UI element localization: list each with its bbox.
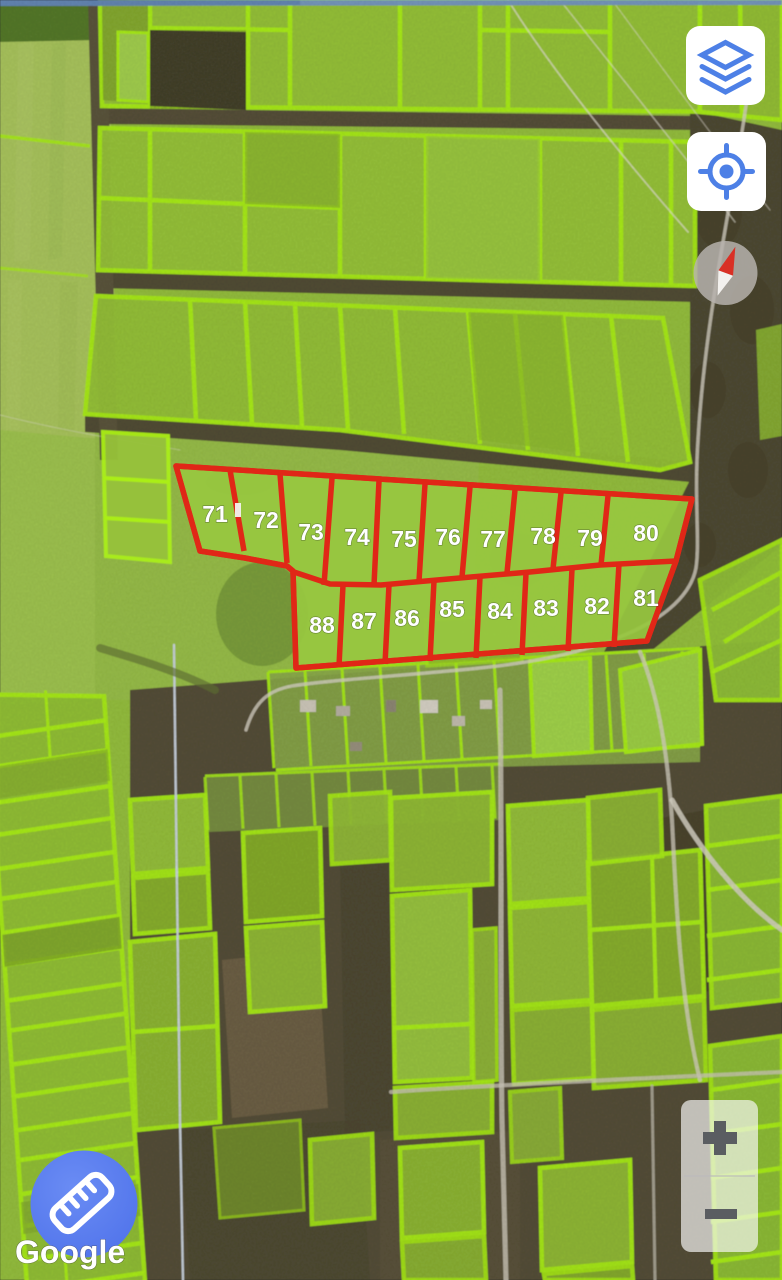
svg-text:73: 73 (298, 519, 324, 545)
svg-text:88: 88 (309, 612, 335, 638)
svg-text:87: 87 (351, 608, 377, 634)
svg-text:82: 82 (584, 593, 610, 619)
svg-text:86: 86 (394, 605, 420, 631)
svg-text:80: 80 (633, 520, 659, 546)
svg-text:Google: Google (15, 1234, 125, 1270)
svg-text:77: 77 (480, 526, 506, 552)
svg-text:79: 79 (577, 525, 603, 551)
svg-text:76: 76 (435, 524, 461, 550)
svg-text:84: 84 (487, 598, 513, 624)
svg-text:74: 74 (344, 524, 370, 550)
svg-text:75: 75 (391, 526, 417, 552)
svg-text:83: 83 (533, 595, 559, 621)
svg-text:78: 78 (530, 523, 556, 549)
svg-text:85: 85 (439, 596, 465, 622)
svg-text:72: 72 (253, 507, 279, 533)
svg-text:81: 81 (633, 585, 659, 611)
svg-text:71: 71 (202, 501, 228, 527)
